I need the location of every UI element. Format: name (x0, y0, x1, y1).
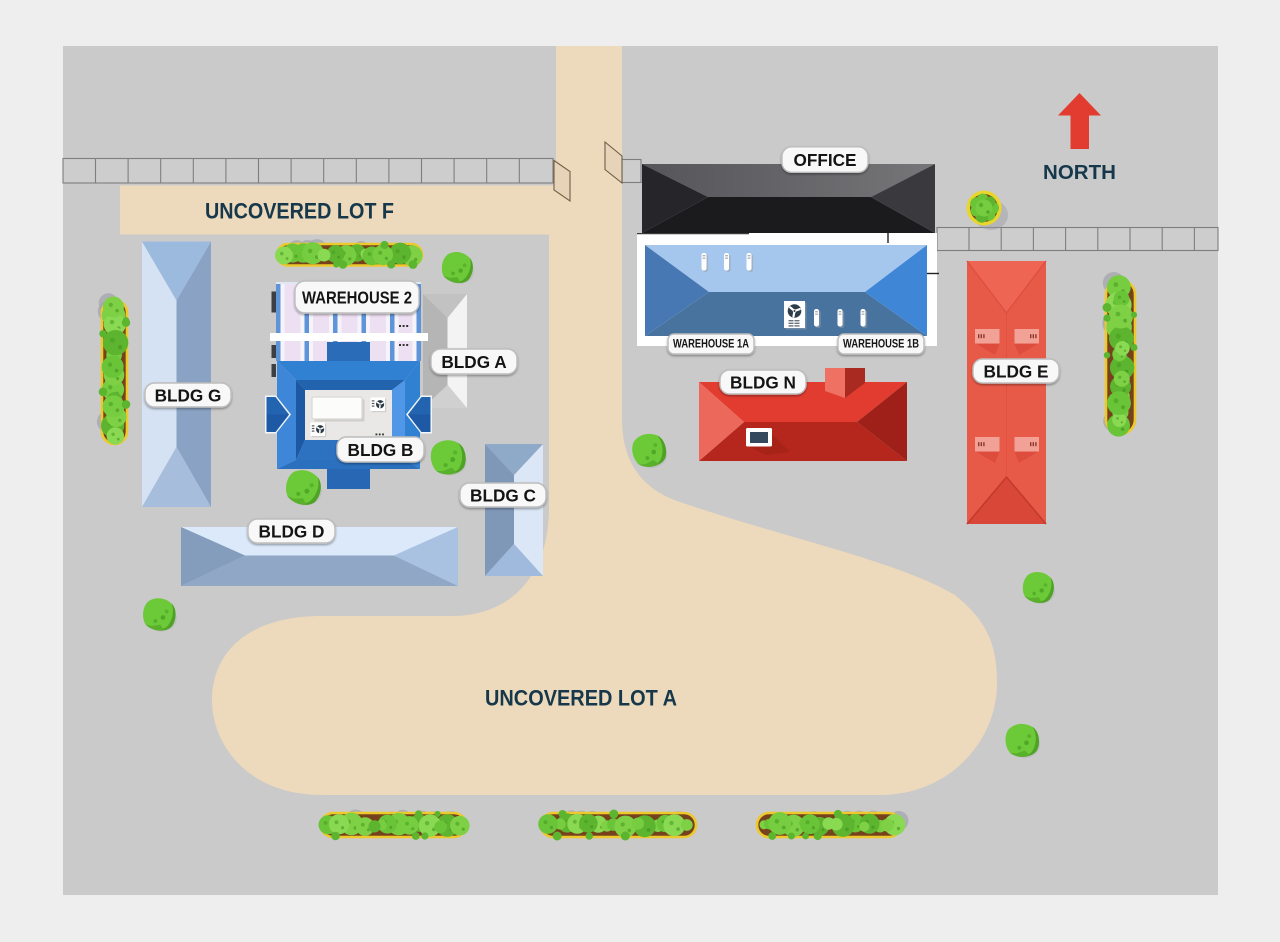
svg-text:BLDG C: BLDG C (470, 486, 536, 506)
svg-text:WAREHOUSE 1A: WAREHOUSE 1A (673, 339, 749, 351)
svg-text:UNCOVERED LOT F: UNCOVERED LOT F (205, 199, 394, 224)
svg-text:UNCOVERED LOT A: UNCOVERED LOT A (485, 686, 677, 711)
svg-text:BLDG G: BLDG G (155, 386, 222, 406)
svg-text:BLDG E: BLDG E (984, 362, 1049, 382)
svg-text:BLDG B: BLDG B (348, 440, 414, 460)
svg-text:WAREHOUSE 1B: WAREHOUSE 1B (843, 339, 919, 351)
svg-text:WAREHOUSE 2: WAREHOUSE 2 (302, 288, 412, 308)
svg-text:BLDG N: BLDG N (730, 373, 796, 393)
svg-text:BLDG A: BLDG A (441, 352, 506, 372)
svg-text:NORTH: NORTH (1043, 161, 1116, 184)
svg-text:OFFICE: OFFICE (793, 150, 856, 170)
svg-text:BLDG D: BLDG D (259, 522, 325, 542)
